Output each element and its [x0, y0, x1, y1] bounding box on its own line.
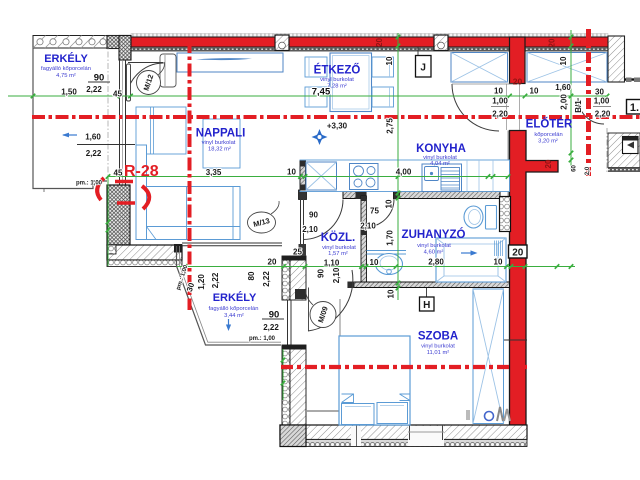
svg-text:ERKÉLY: ERKÉLY [44, 52, 88, 65]
svg-text:20: 20 [268, 258, 277, 267]
svg-text:45: 45 [114, 169, 123, 178]
svg-text:R-28: R-28 [124, 163, 159, 180]
svg-text:10: 10 [385, 199, 394, 208]
svg-text:4,00: 4,00 [396, 168, 412, 177]
svg-text:2,20: 2,20 [595, 110, 611, 119]
svg-text:20: 20 [548, 38, 557, 47]
svg-text:2,80: 2,80 [428, 258, 444, 267]
svg-text:2,10: 2,10 [360, 222, 376, 231]
svg-text:90: 90 [94, 73, 105, 84]
svg-text:10: 10 [494, 87, 503, 96]
svg-text:2,20: 2,20 [492, 110, 508, 119]
svg-text:10: 10 [530, 87, 539, 96]
svg-text:10: 10 [559, 56, 568, 65]
svg-text:30: 30 [595, 88, 604, 97]
svg-text:20: 20 [513, 77, 523, 87]
svg-text:18,32 m²: 18,32 m² [208, 147, 231, 153]
svg-text:90: 90 [269, 310, 280, 321]
svg-text:vinyl burkolat: vinyl burkolat [421, 344, 455, 350]
svg-text:1,60: 1,60 [85, 133, 101, 142]
svg-text:3,20 m²: 3,20 m² [538, 139, 558, 145]
svg-text:2,75: 2,75 [386, 118, 395, 134]
svg-text:75: 75 [370, 207, 379, 216]
svg-text:2,0: 2,0 [585, 166, 591, 175]
svg-text:80: 80 [247, 271, 256, 280]
svg-text:pm.: 1,00: pm.: 1,00 [249, 336, 276, 342]
svg-text:KÖZL.: KÖZL. [321, 231, 356, 244]
svg-text:ELŐTÉR: ELŐTÉR [526, 118, 573, 131]
svg-text:2,10: 2,10 [302, 225, 318, 234]
svg-text:fagyálló kőporcelán: fagyálló kőporcelán [209, 306, 259, 312]
svg-text:1,00: 1,00 [594, 97, 610, 106]
svg-text:fagyálló kőporcelán: fagyálló kőporcelán [41, 66, 91, 72]
svg-text:ZUHANYZÓ: ZUHANYZÓ [402, 228, 466, 241]
svg-text:10: 10 [385, 56, 394, 65]
svg-text:20: 20 [512, 247, 524, 258]
svg-text:10: 10 [387, 289, 396, 298]
svg-text:11,01 m²: 11,01 m² [427, 350, 450, 356]
svg-text:1,50: 1,50 [61, 88, 77, 97]
svg-text:kőporcelán: kőporcelán [534, 132, 562, 138]
svg-text:2,22: 2,22 [211, 272, 220, 288]
svg-text:1,10: 1,10 [324, 259, 340, 268]
svg-text:1,00: 1,00 [492, 97, 508, 106]
svg-text:1,60: 1,60 [555, 83, 571, 92]
svg-text:3,35: 3,35 [206, 168, 222, 177]
svg-text:2,00: 2,00 [560, 94, 569, 110]
svg-text:vinyl burkolat: vinyl burkolat [202, 140, 236, 146]
svg-text:ERKÉLY: ERKÉLY [213, 291, 257, 304]
svg-text:90: 90 [317, 269, 326, 278]
svg-text:4,75 m²: 4,75 m² [56, 73, 76, 79]
svg-text:60: 60 [572, 165, 578, 172]
svg-text:vinyl burkolat: vinyl burkolat [320, 77, 354, 83]
svg-text:H: H [423, 300, 430, 311]
svg-text:20: 20 [375, 38, 384, 47]
svg-text:NAPPALI: NAPPALI [196, 128, 246, 140]
svg-text:SZOBA: SZOBA [418, 331, 458, 343]
svg-text:1,20: 1,20 [197, 274, 206, 290]
svg-text:2,22: 2,22 [263, 323, 279, 332]
svg-text:2,22: 2,22 [86, 85, 102, 94]
svg-text:1,57 m²: 1,57 m² [328, 251, 348, 257]
svg-text:+3,30: +3,30 [327, 122, 348, 131]
svg-text:4,60 m²: 4,60 m² [424, 250, 444, 256]
svg-text:10: 10 [287, 168, 296, 177]
svg-text:3,44 m²: 3,44 m² [224, 313, 244, 319]
svg-text:B/1: B/1 [574, 100, 583, 113]
svg-text:1.: 1. [630, 102, 639, 114]
svg-text:20: 20 [544, 159, 553, 168]
svg-text:4,04 m²: 4,04 m² [430, 161, 450, 167]
svg-text:1,70: 1,70 [386, 230, 395, 246]
svg-text:2,22: 2,22 [262, 271, 271, 287]
svg-text:90: 90 [309, 211, 318, 220]
svg-text:J: J [420, 63, 426, 74]
svg-text:7,45: 7,45 [312, 87, 331, 98]
svg-text:25: 25 [293, 248, 302, 257]
svg-text:pm.: 1,00: pm.: 1,00 [76, 181, 103, 187]
svg-text:ÉTKEZŐ: ÉTKEZŐ [314, 64, 361, 77]
svg-text:vinyl burkolat: vinyl burkolat [417, 243, 451, 249]
svg-text:2,10: 2,10 [332, 267, 341, 283]
svg-text:2,22: 2,22 [86, 149, 102, 158]
svg-text:KONYHA: KONYHA [416, 143, 466, 155]
svg-text:45: 45 [113, 90, 122, 99]
svg-text:10: 10 [494, 258, 503, 267]
svg-text:10: 10 [370, 258, 379, 267]
